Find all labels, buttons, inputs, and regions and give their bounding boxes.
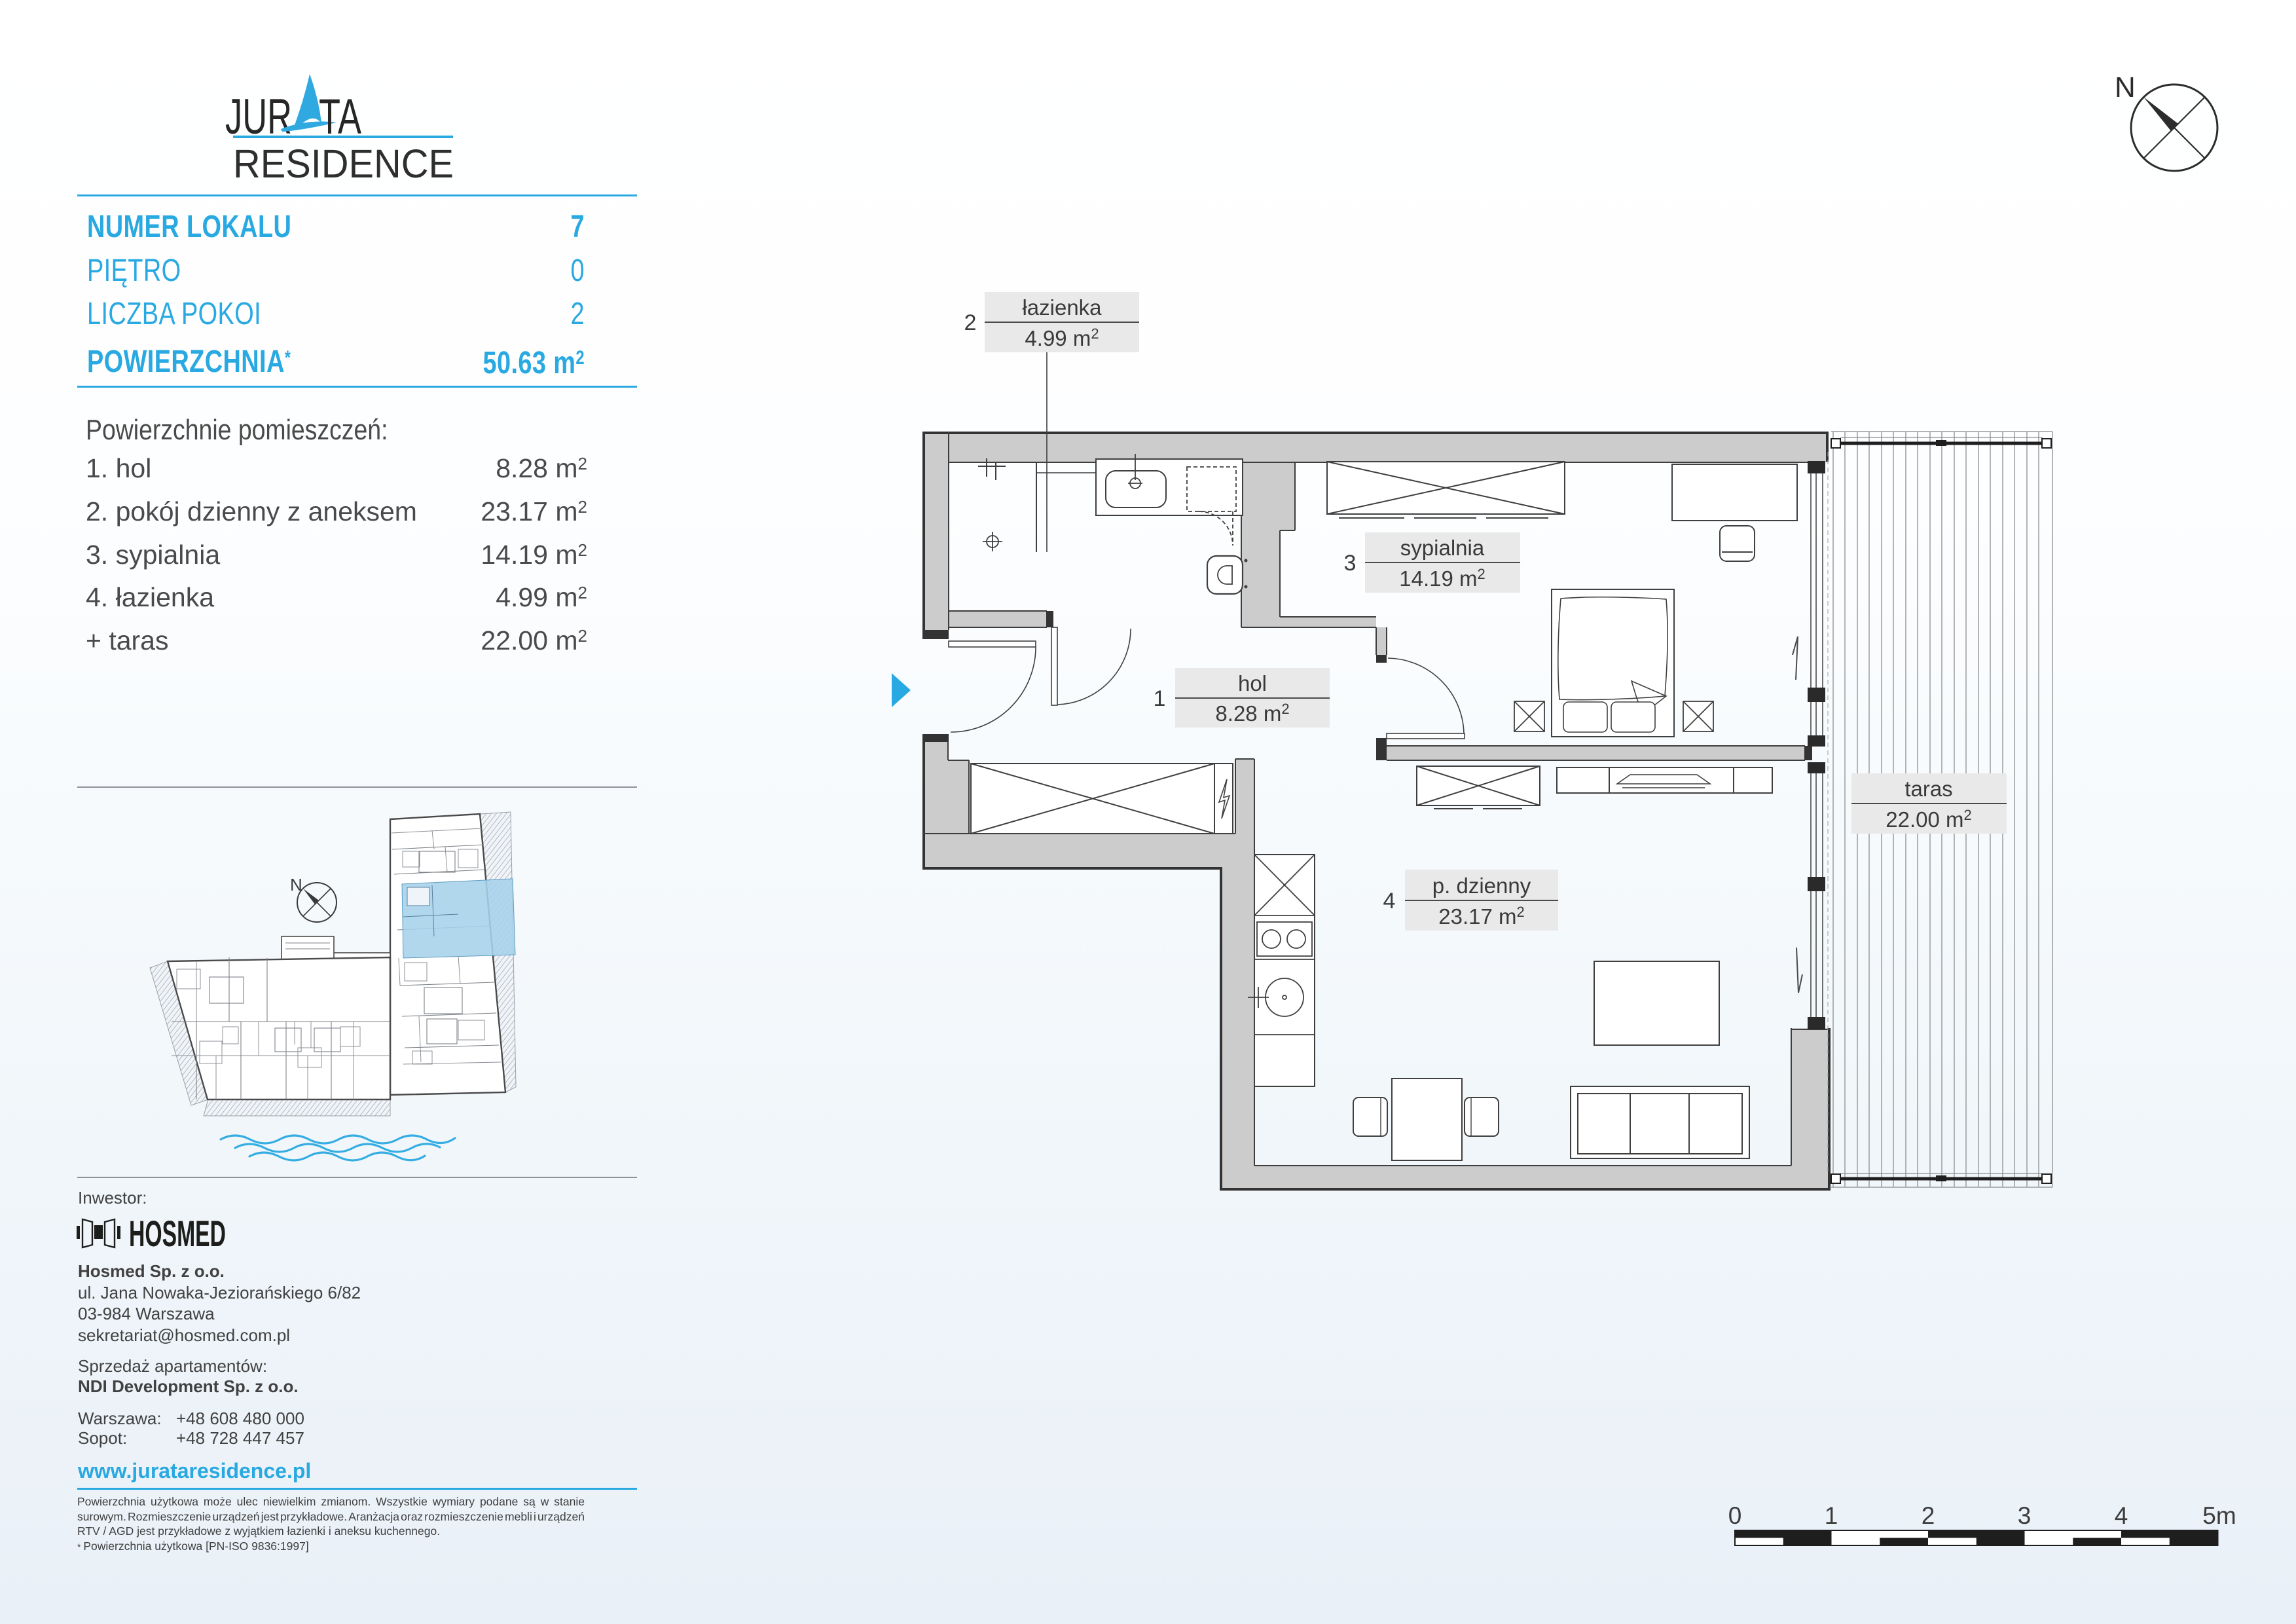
svg-text:2: 2 [964, 310, 977, 335]
svg-text:RESIDENCE: RESIDENCE [233, 141, 454, 186]
svg-text:4.99 m2: 4.99 m2 [1025, 325, 1099, 350]
svg-text:0: 0 [1728, 1502, 1742, 1529]
svg-text:N: N [2115, 71, 2136, 103]
svg-text:3: 3 [1344, 551, 1357, 576]
svg-text:3: 3 [2018, 1502, 2032, 1529]
svg-text:4: 4 [1383, 889, 1396, 913]
svg-text:HOSMED: HOSMED [129, 1213, 226, 1253]
svg-text:hol: hol [1238, 671, 1267, 695]
svg-text:2: 2 [1922, 1502, 1935, 1529]
svg-text:p. dzienny: p. dzienny [1432, 874, 1531, 898]
svg-text:sypialnia: sypialnia [1400, 536, 1485, 560]
svg-text:łazienka: łazienka [1022, 295, 1102, 320]
svg-text:N: N [290, 875, 302, 895]
svg-text:14.19 m2: 14.19 m2 [1399, 566, 1485, 591]
svg-text:1: 1 [1825, 1502, 1838, 1529]
svg-text:taras: taras [1904, 777, 1952, 801]
svg-text:1: 1 [1154, 686, 1166, 711]
svg-text:4: 4 [2115, 1502, 2128, 1529]
svg-text:5m: 5m [2202, 1502, 2236, 1529]
svg-text:22.00 m2: 22.00 m2 [1886, 807, 1972, 832]
svg-text:8.28 m2: 8.28 m2 [1215, 701, 1289, 726]
svg-text:23.17 m2: 23.17 m2 [1438, 904, 1525, 929]
